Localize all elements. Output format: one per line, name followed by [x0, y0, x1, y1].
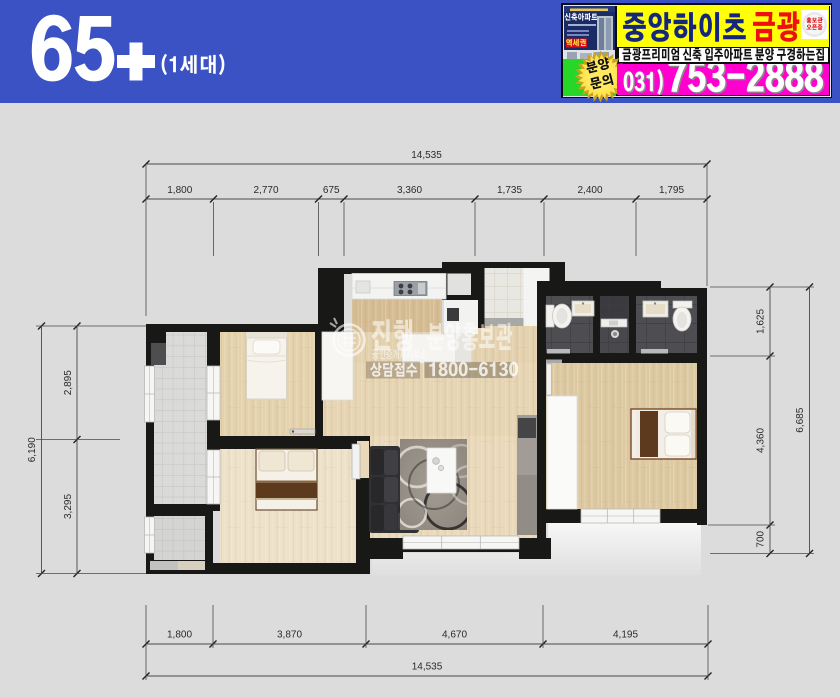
svg-text:2,770: 2,770 — [253, 185, 278, 196]
svg-text:4,360: 4,360 — [756, 428, 767, 453]
svg-text:3,295: 3,295 — [63, 494, 74, 519]
svg-text:700: 700 — [756, 530, 767, 547]
svg-text:1,800: 1,800 — [167, 630, 192, 641]
svg-text:14,535: 14,535 — [411, 150, 442, 161]
svg-text:6,685: 6,685 — [795, 407, 806, 432]
svg-text:3,360: 3,360 — [397, 185, 422, 196]
svg-text:675: 675 — [323, 185, 340, 196]
svg-text:14,535: 14,535 — [412, 662, 443, 673]
svg-text:3,870: 3,870 — [277, 630, 302, 641]
svg-text:4,670: 4,670 — [442, 630, 467, 641]
svg-text:1,625: 1,625 — [756, 309, 767, 334]
svg-text:1,735: 1,735 — [497, 185, 522, 196]
svg-text:6,190: 6,190 — [27, 437, 38, 462]
svg-text:2,895: 2,895 — [63, 370, 74, 395]
svg-text:1,795: 1,795 — [659, 185, 684, 196]
svg-text:2,400: 2,400 — [577, 185, 602, 196]
svg-text:1,800: 1,800 — [167, 185, 192, 196]
svg-text:4,195: 4,195 — [613, 630, 638, 641]
